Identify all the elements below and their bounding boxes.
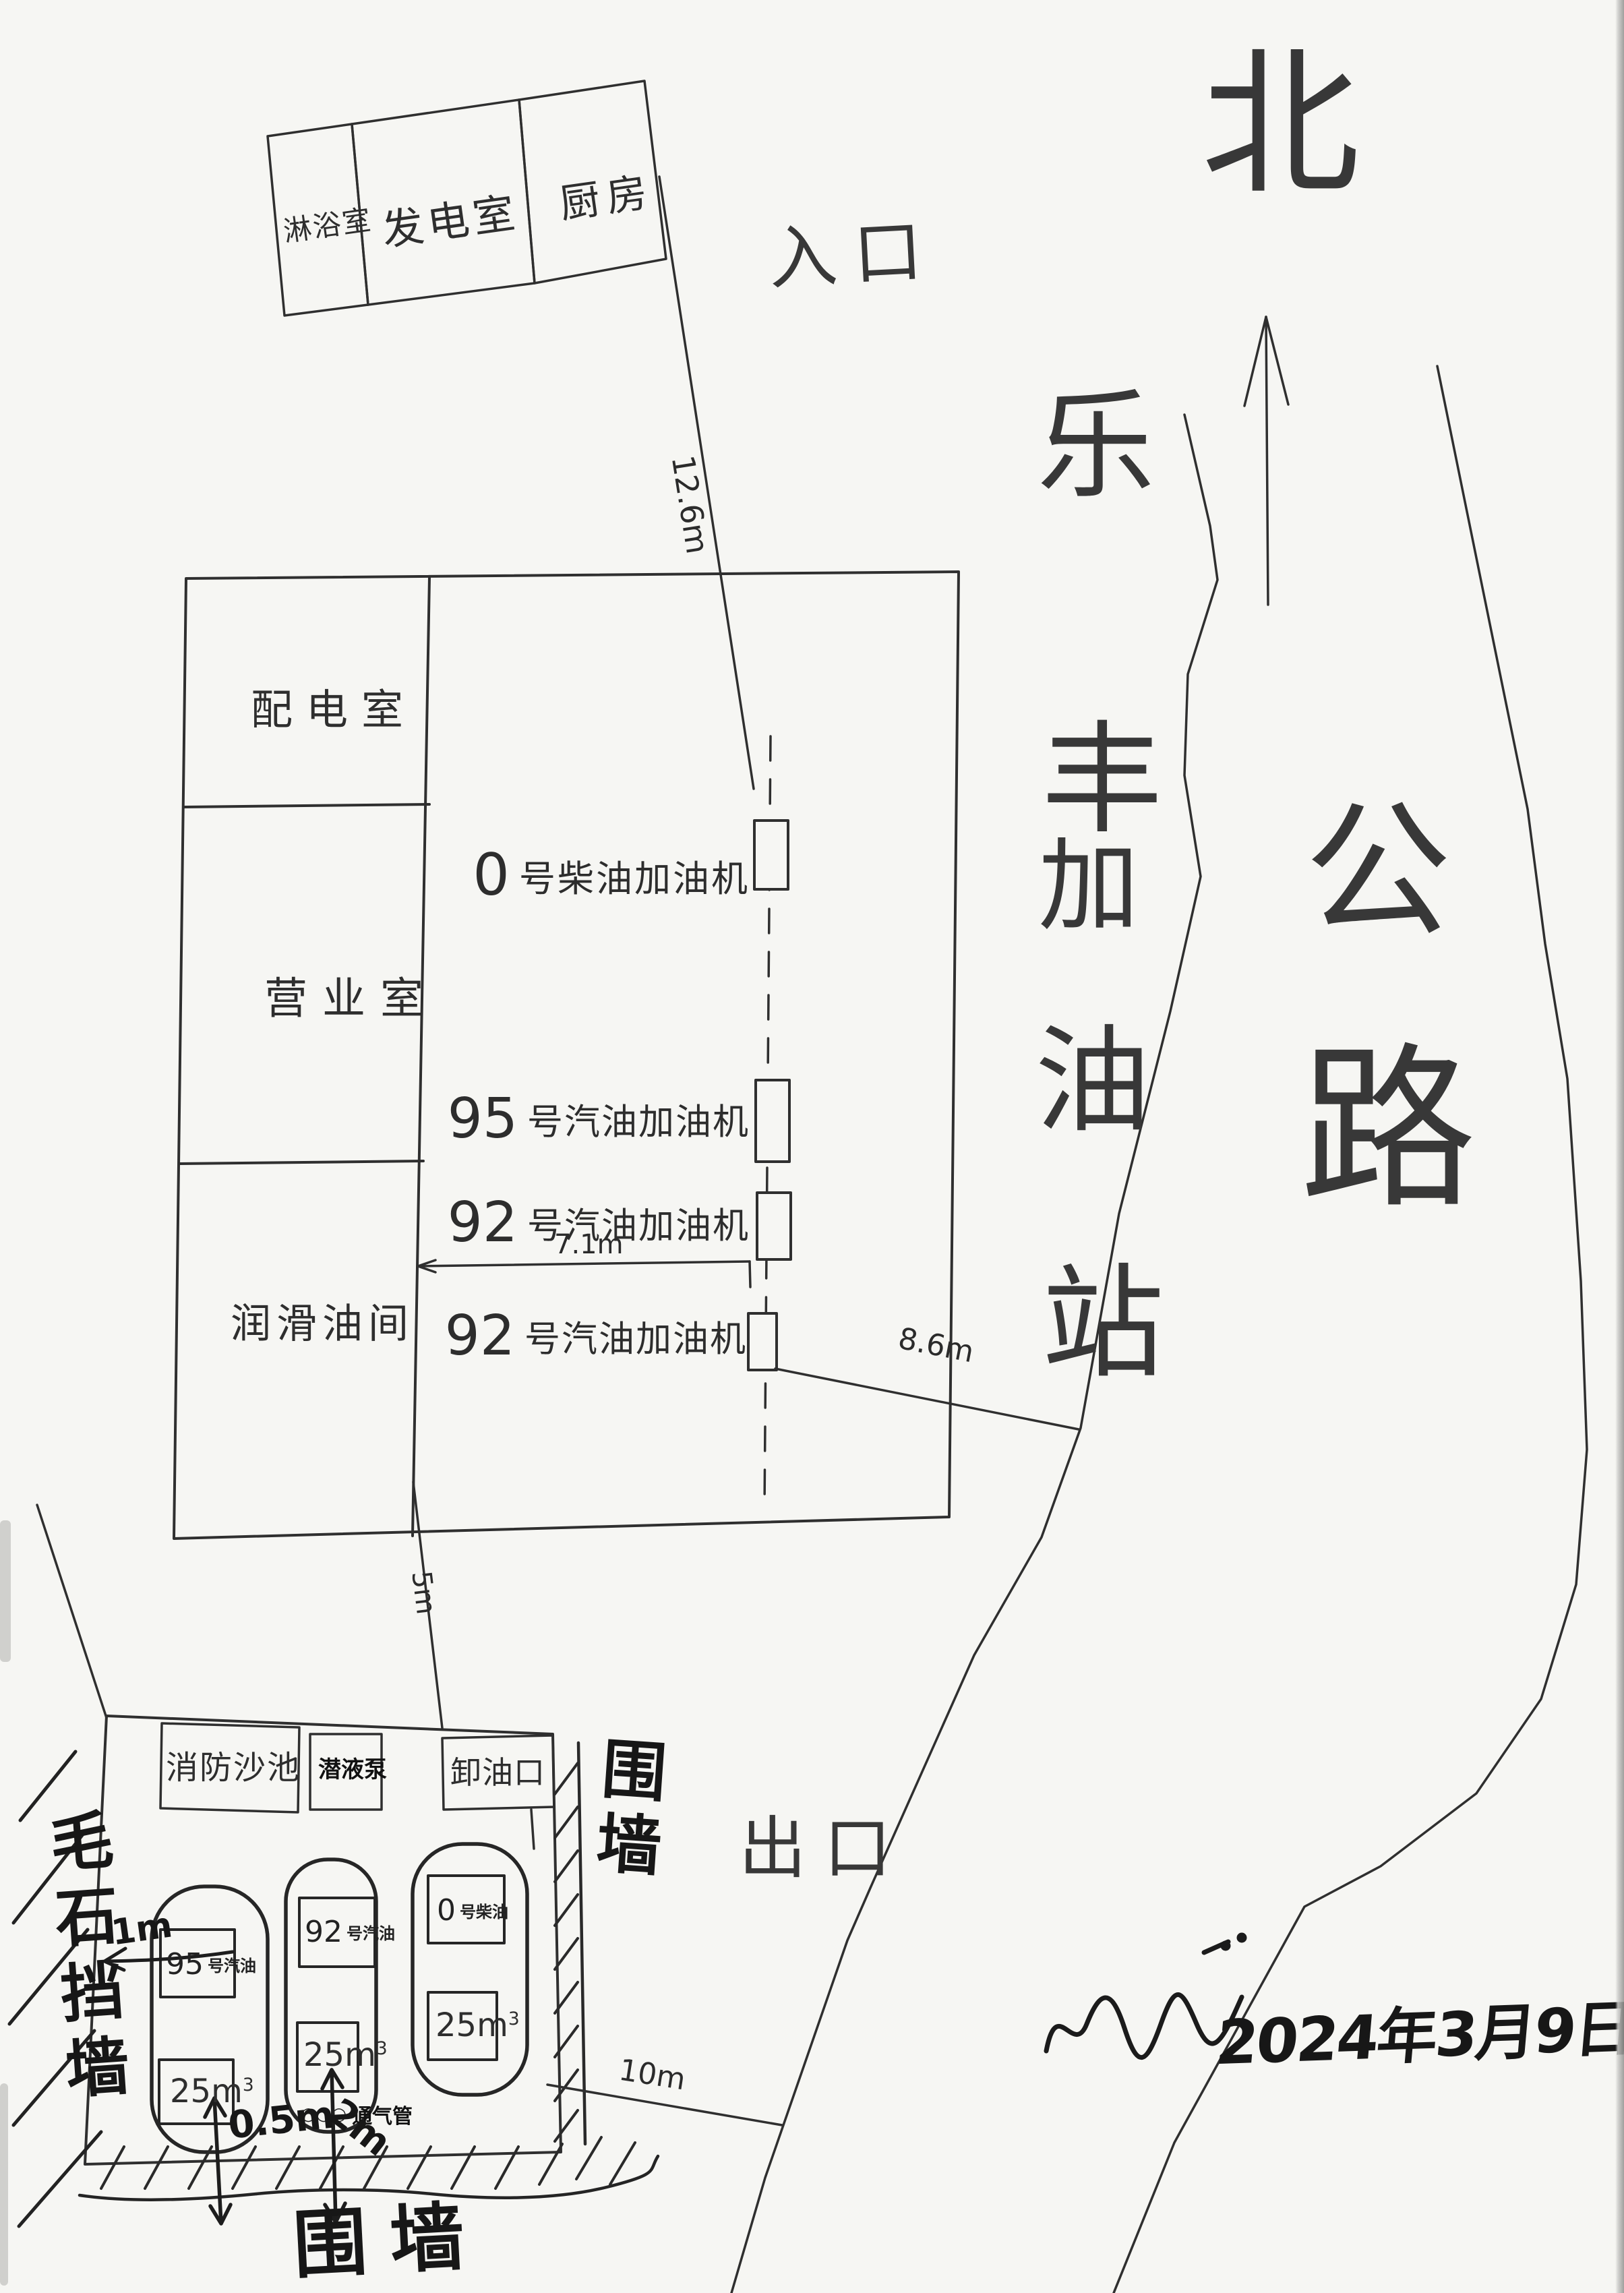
right-wall-label: 围墙 <box>589 1734 663 1886</box>
fire-sand-pool-label: 消防沙池 <box>166 1752 301 1784</box>
north-label: 北 <box>1201 46 1360 204</box>
pump-box-label: 潜液泵 <box>318 1758 387 1781</box>
scan-smudge-left-1 <box>0 1520 11 1662</box>
dim-0-5m: 0.5m <box>227 2097 336 2145</box>
dim-7-1m-line <box>418 1261 750 1266</box>
dispenser-row-gas-95: 95 号汽油加油机 <box>448 1087 750 1151</box>
bottom-wall-label: 围墙 <box>291 2199 489 2283</box>
station-name-char-4: 油 <box>1035 1023 1151 1139</box>
exit-label: 出口 <box>739 1815 909 1882</box>
tank-volume-92: 25m3 <box>303 2039 388 2071</box>
retaining-wall-label: 毛石挡墙 <box>42 1806 126 2112</box>
entrance-label: 入口 <box>767 216 940 294</box>
dim-5m: 5m <box>407 1570 440 1616</box>
room-business-office: 营业室 <box>264 978 438 1021</box>
north-arrow-icon <box>1244 317 1288 605</box>
station-name-char-5: 站 <box>1042 1262 1164 1385</box>
dispenser-row-diesel-0: 0 号柴油加油机 <box>473 841 750 909</box>
room-lubricant: 润滑油间 <box>231 1304 414 1344</box>
dim-7-1m: 7.1m <box>554 1231 624 1258</box>
site-plan-scan: 北 乐 丰 加 油 站 公 路 入口 出口 淋浴室 发电室 厨房 配电室 营业室… <box>0 0 1624 2293</box>
station-name-char-3: 加 <box>1038 836 1139 937</box>
road-label-char-2: 路 <box>1300 1042 1476 1218</box>
unloading-port-label: 卸油口 <box>450 1757 545 1788</box>
road-label-char-1: 公 <box>1304 799 1451 946</box>
station-name-char-1: 乐 <box>1037 388 1155 506</box>
signature <box>1046 1935 1244 2058</box>
tank-label-92: 92 号汽油 <box>305 1915 395 1949</box>
station-name-char-2: 丰 <box>1042 720 1163 841</box>
dim-8-6m-line <box>775 1369 1079 1429</box>
tank-label-0: 0 号柴油 <box>437 1893 508 1928</box>
dispenser-row-gas-92-b: 92 号汽油加油机 <box>445 1304 747 1368</box>
tank-volume-0: 25m3 <box>435 2009 520 2042</box>
date-label: 2024年3月9日 <box>1213 1998 1624 2074</box>
room-power-distribution: 配电室 <box>251 689 417 731</box>
scan-smudge-left-2 <box>0 2083 8 2286</box>
tank-label-95: 95 号汽油 <box>166 1947 256 1982</box>
room-kitchen: 厨房 <box>558 172 657 225</box>
scan-edge-shadow <box>1615 0 1624 2293</box>
